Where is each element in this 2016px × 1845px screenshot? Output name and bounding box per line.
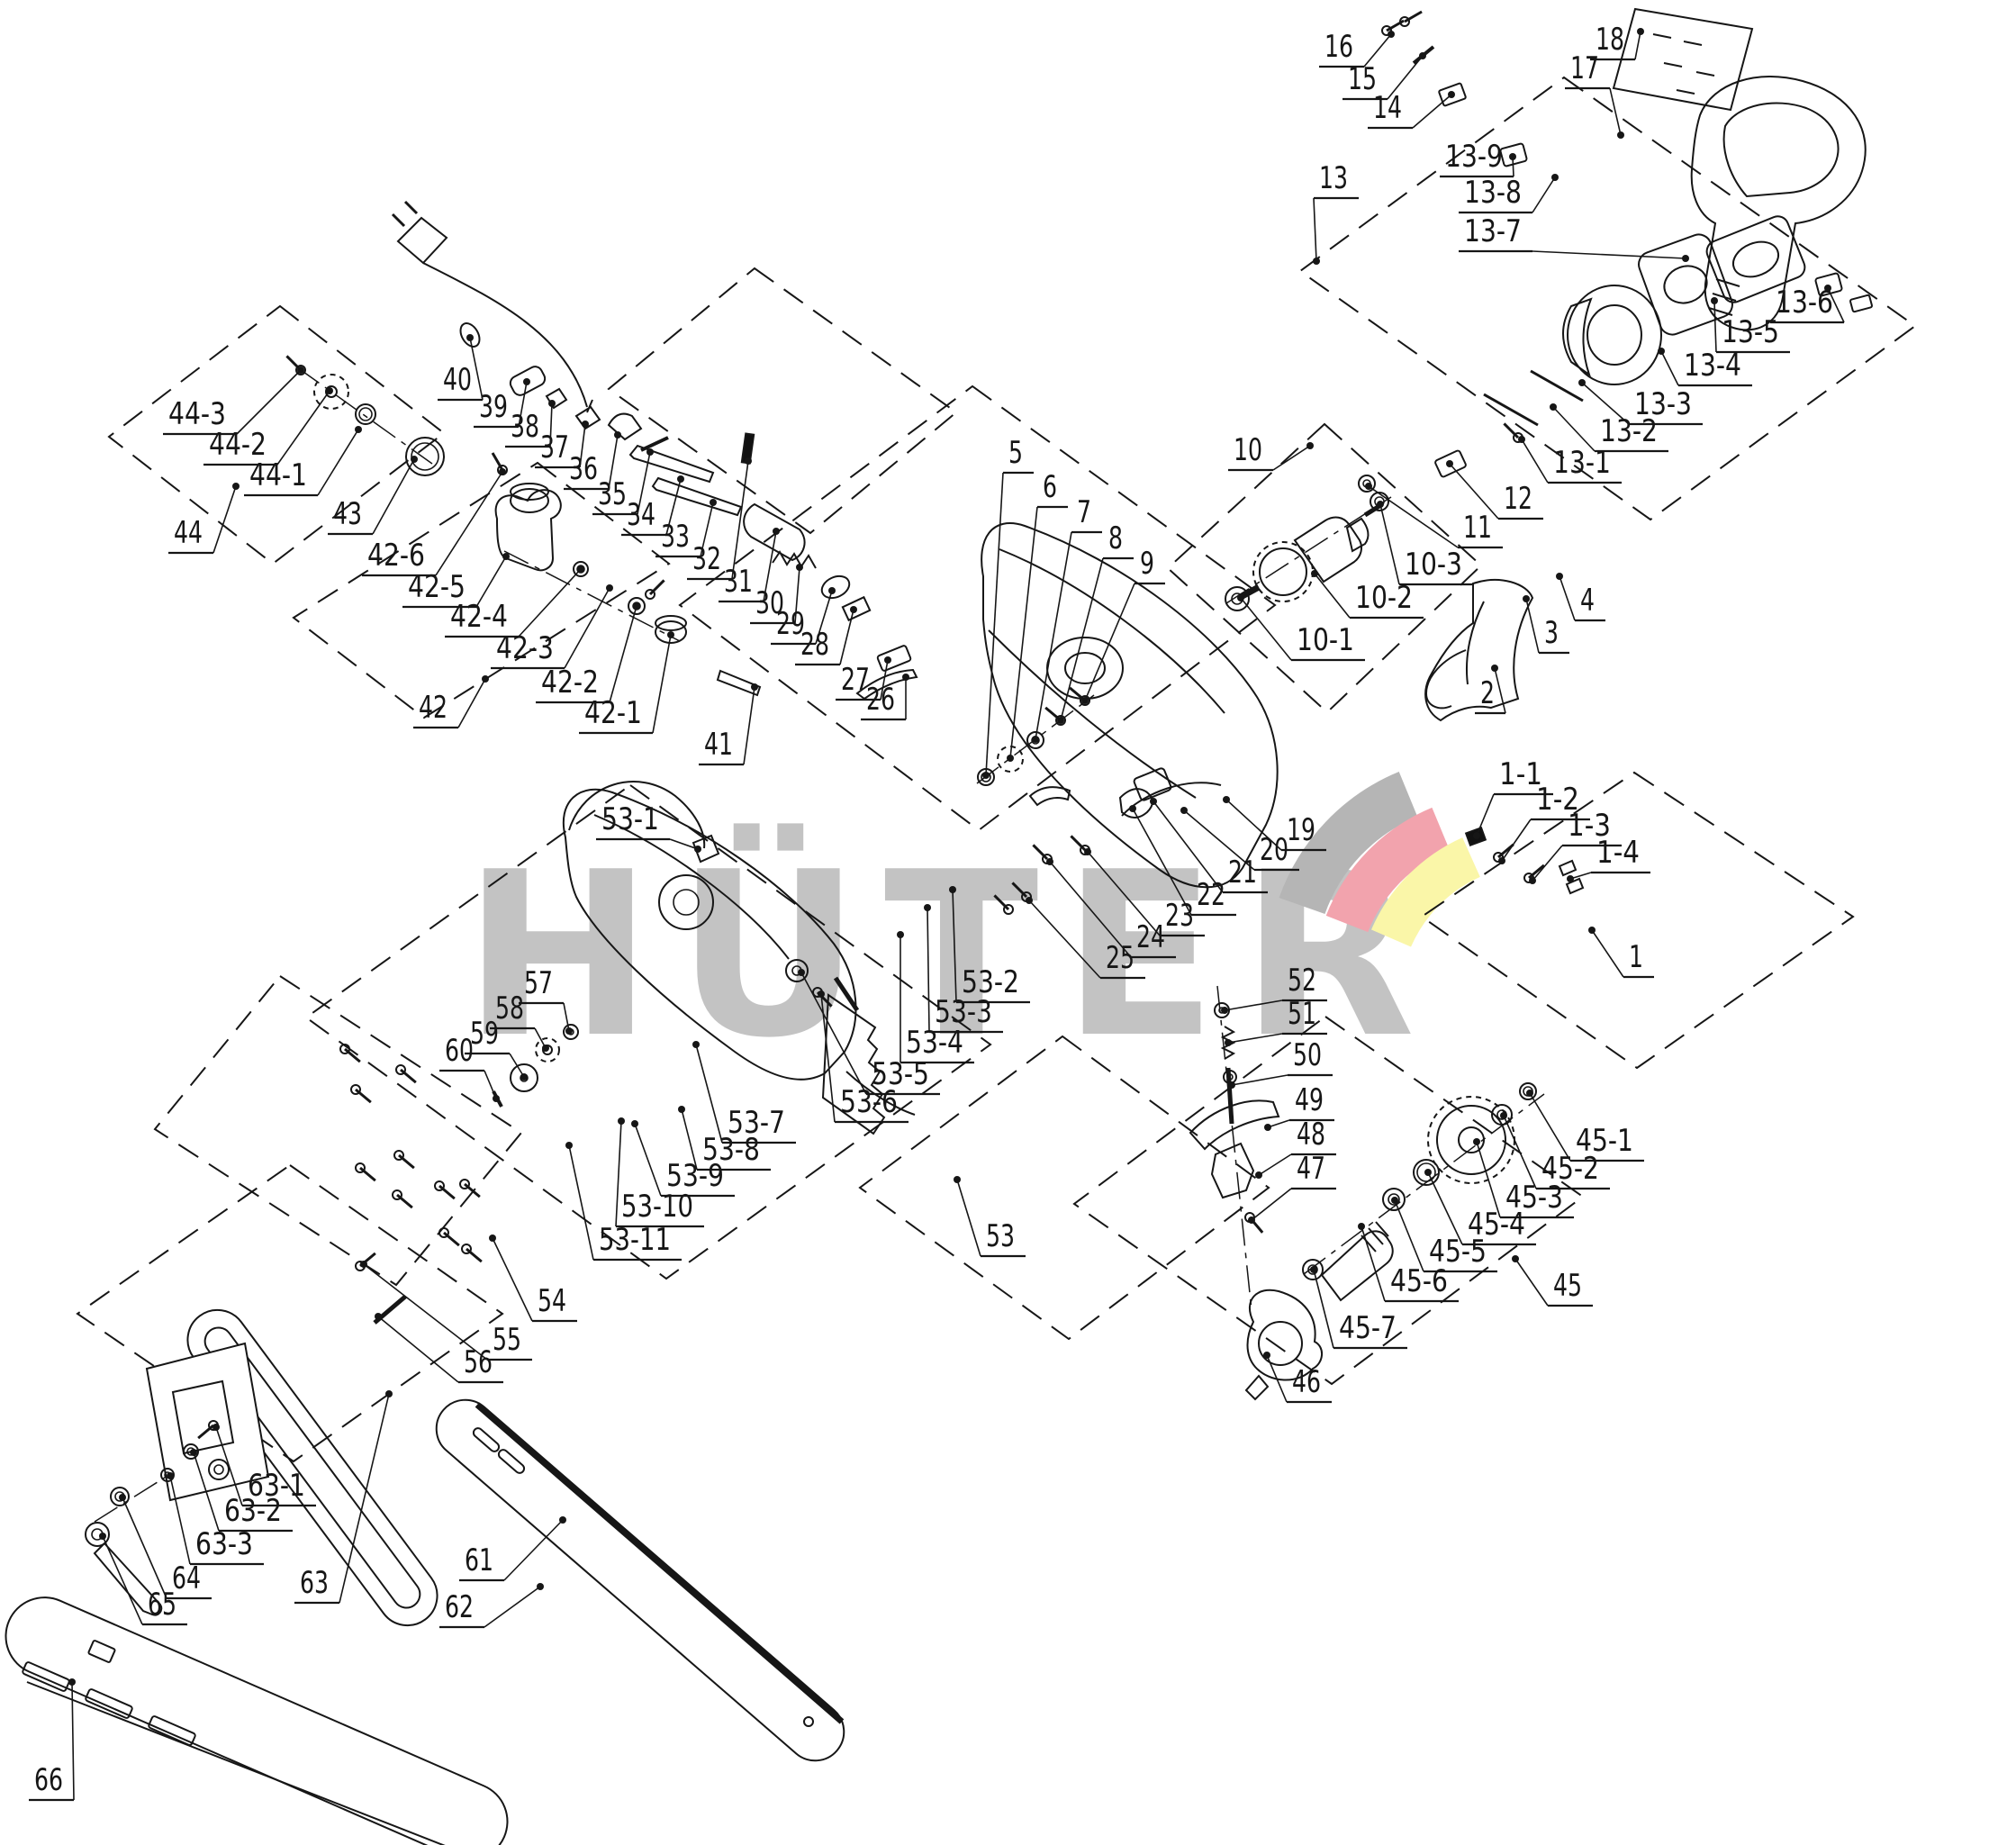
part-label-52: 52 — [1288, 963, 1316, 999]
ring-44-2-inner — [359, 408, 372, 421]
leader-dot-53-11 — [565, 1142, 573, 1149]
lever-36 — [609, 414, 641, 439]
leader-line-45 — [1515, 1259, 1548, 1306]
leader-dot-42-4 — [577, 565, 584, 573]
part-label-4: 4 — [1580, 583, 1595, 619]
part-label-60: 60 — [445, 1033, 474, 1069]
part-label-42-1: 42-1 — [584, 695, 642, 731]
part-label-53: 53 — [986, 1218, 1015, 1254]
leader-dot-15 — [1419, 52, 1426, 59]
part-label-8: 8 — [1108, 520, 1123, 556]
leader-dot-1-4 — [1567, 875, 1574, 882]
leader-line-46 — [1267, 1355, 1287, 1402]
part-label-10: 10 — [1234, 432, 1262, 468]
leader-dot-10 — [1306, 442, 1314, 449]
screw-long-a — [1484, 394, 1538, 425]
leader-dot-40 — [466, 334, 474, 341]
leader-dot-1-1 — [1473, 832, 1480, 839]
leader-dot-12 — [1446, 460, 1453, 467]
leader-dot-21 — [1150, 798, 1157, 805]
part-label-44: 44 — [174, 515, 203, 551]
part-label-45-6: 45-6 — [1390, 1263, 1448, 1299]
part-label-21: 21 — [1228, 855, 1257, 891]
leader-dot-53-8 — [678, 1106, 685, 1113]
leader-dot-53-5 — [798, 969, 805, 976]
screw-16b-shaft — [1405, 12, 1422, 22]
part-label-32: 32 — [692, 541, 721, 577]
part-label-59: 59 — [470, 1016, 499, 1052]
leader-line-10-3 — [1380, 504, 1399, 584]
part-label-45: 45 — [1553, 1268, 1582, 1304]
leader-dot-32 — [745, 457, 752, 465]
exploded-parts-diagram: HÜTER 1615141313-913-813-7171813-613-513… — [0, 0, 2016, 1845]
leader-dot-44 — [232, 483, 240, 490]
leader-dot-37 — [582, 421, 589, 428]
screw-54g-shaft — [439, 1186, 455, 1198]
leader-line-44-2 — [277, 391, 330, 465]
leader-dot-45-5 — [1391, 1197, 1398, 1204]
leader-line-42-2 — [610, 606, 637, 702]
scabbard-66 — [0, 1585, 520, 1845]
leader-dot-36 — [614, 431, 621, 439]
part-label-23: 23 — [1165, 898, 1194, 934]
part-label-54: 54 — [538, 1283, 566, 1319]
leader-line-64 — [122, 1497, 167, 1598]
leader-dot-59 — [520, 1073, 528, 1081]
leader-line-5 — [986, 473, 1003, 775]
leader-dot-39 — [523, 378, 530, 385]
block-13-6b — [1850, 294, 1873, 312]
handle-17-inner — [1724, 103, 1839, 196]
leader-dot-17 — [1617, 131, 1624, 139]
leader-dot-13-2 — [1550, 403, 1557, 411]
part-label-63-2: 63-2 — [224, 1493, 282, 1529]
screw-54d-shaft — [399, 1155, 414, 1168]
leader-line-44-1 — [318, 430, 358, 495]
leader-line-42-4 — [519, 569, 581, 637]
pump-46-ear — [1246, 1376, 1268, 1399]
guard-2-tube — [1426, 650, 1466, 708]
part-label-39: 39 — [479, 389, 508, 425]
screw-long-b — [1531, 371, 1583, 401]
part-label-65: 65 — [148, 1587, 176, 1623]
leader-line-1-1 — [1477, 794, 1494, 836]
leader-dot-18 — [1637, 28, 1644, 35]
part-label-47: 47 — [1297, 1151, 1325, 1187]
plug-prong-a — [393, 214, 404, 226]
fan-13-4b — [1587, 305, 1641, 365]
leader-line-45-5 — [1395, 1200, 1424, 1271]
leader-line-65 — [103, 1536, 142, 1624]
leader-dot-63-3 — [167, 1472, 174, 1479]
leader-line-11 — [1369, 486, 1458, 547]
part-label-53-1: 53-1 — [601, 801, 659, 837]
part-label-28: 28 — [800, 627, 829, 663]
leader-line-41 — [744, 687, 755, 764]
leader-line-13-5 — [1714, 301, 1716, 352]
leader-dot-9 — [1081, 697, 1089, 704]
part-label-24: 24 — [1136, 919, 1165, 955]
leader-dot-48 — [1255, 1171, 1262, 1179]
leader-dot-11 — [1365, 483, 1372, 490]
leader-line-13 — [1314, 198, 1316, 261]
housing-upper-boss — [1047, 638, 1123, 699]
leader-dot-50 — [1228, 1081, 1235, 1089]
leader-dot-53-7 — [692, 1041, 700, 1048]
leader-dot-23 — [1084, 848, 1091, 855]
leader-dot-55 — [360, 1261, 367, 1268]
leader-line-10 — [1273, 446, 1310, 470]
part-label-46: 46 — [1292, 1364, 1321, 1400]
part-label-57: 57 — [524, 965, 553, 1001]
rod-33 — [653, 478, 741, 515]
leader-dot-56 — [375, 1313, 382, 1320]
leader-dot-16 — [1388, 31, 1395, 38]
leader-dot-1 — [1588, 927, 1596, 934]
screw-13-1-shaft — [1504, 423, 1518, 438]
leader-line-62 — [484, 1587, 540, 1627]
leader-dot-28 — [850, 606, 857, 613]
leader-line-48 — [1259, 1154, 1291, 1175]
screw-54j-shaft — [466, 1249, 482, 1262]
leader-line-1-2 — [1502, 819, 1531, 861]
leader-line-6 — [1010, 507, 1037, 758]
leader-dot-52 — [1221, 1007, 1228, 1014]
leader-line-10-1 — [1241, 598, 1291, 660]
leader-dot-45 — [1512, 1255, 1519, 1262]
part-label-11: 11 — [1463, 510, 1492, 546]
leader-dot-63-1 — [212, 1424, 220, 1431]
leader-line-13-8 — [1532, 177, 1555, 213]
leader-line-53-9 — [635, 1124, 661, 1196]
part-label-53-11: 53-11 — [599, 1222, 671, 1258]
leader-dot-53-1 — [694, 846, 701, 853]
part-label-10-1: 10-1 — [1297, 622, 1354, 658]
armature-gear2 — [1260, 548, 1306, 595]
part-label-31: 31 — [724, 564, 753, 600]
leader-dot-65 — [99, 1533, 106, 1540]
leader-line-44-3 — [237, 370, 301, 434]
leader-dot-45-3 — [1473, 1138, 1480, 1145]
part-label-53-10: 53-10 — [621, 1189, 693, 1225]
leader-dot-13-7 — [1682, 255, 1689, 262]
leader-dot-22 — [1129, 805, 1136, 812]
leader-dot-53-4 — [897, 931, 904, 938]
diagram-page: HÜTER 1615141313-913-813-7171813-613-513… — [0, 0, 2016, 1845]
leader-dot-13-1 — [1518, 436, 1525, 443]
part-label-53-6: 53-6 — [840, 1084, 898, 1120]
leader-dot-53-10 — [618, 1117, 625, 1125]
leader-dot-13-3 — [1578, 379, 1586, 386]
leader-line-42-3 — [565, 588, 610, 668]
leader-dot-7 — [1032, 736, 1039, 743]
part-label-33: 33 — [661, 519, 690, 555]
part-label-42: 42 — [419, 690, 447, 726]
leader-line-4 — [1559, 576, 1575, 620]
leader-line-43 — [373, 459, 414, 534]
guard-2 — [1425, 580, 1532, 720]
leader-dot-14 — [1448, 91, 1455, 98]
part-label-13-4: 13-4 — [1684, 348, 1741, 384]
pump-46-bore — [1259, 1322, 1302, 1365]
leader-dot-1-2 — [1498, 857, 1505, 864]
part-label-3: 3 — [1544, 615, 1559, 651]
part-label-18: 18 — [1596, 22, 1624, 58]
leader-line-54 — [493, 1238, 532, 1321]
part-label-42-6: 42-6 — [367, 538, 425, 574]
part-label-61: 61 — [465, 1542, 493, 1578]
leader-dot-13-8 — [1551, 174, 1559, 181]
power-plug — [398, 218, 447, 263]
part-label-53-4: 53-4 — [906, 1025, 963, 1061]
part-label-20: 20 — [1260, 832, 1288, 868]
part-label-44-1: 44-1 — [249, 457, 307, 493]
part-label-40: 40 — [443, 362, 472, 398]
guard-2-line — [1467, 601, 1484, 684]
leader-dot-64 — [119, 1494, 126, 1501]
leader-dot-47 — [1248, 1216, 1255, 1224]
leader-dot-33 — [710, 499, 717, 506]
leader-dot-42-2 — [633, 602, 640, 610]
leader-dot-2 — [1491, 665, 1498, 672]
leader-dot-10-3 — [1377, 501, 1384, 508]
leader-line-53-11 — [569, 1145, 593, 1260]
screw-54b-shaft — [401, 1070, 416, 1082]
part-label-13-5: 13-5 — [1722, 314, 1779, 350]
leader-line-13-4 — [1661, 351, 1678, 385]
part-label-14: 14 — [1373, 90, 1402, 126]
tube-24 — [1030, 787, 1070, 805]
leader-dot-41 — [751, 683, 758, 691]
leader-dot-53-9 — [631, 1120, 638, 1127]
part-label-13-7: 13-7 — [1464, 213, 1522, 249]
leader-dot-63 — [385, 1390, 393, 1397]
part-label-43: 43 — [333, 496, 362, 532]
part-label-63-3: 63-3 — [195, 1526, 253, 1562]
plug-prong-b — [405, 202, 417, 213]
leader-line-63 — [339, 1394, 389, 1603]
leader-dot-42-1 — [667, 631, 674, 638]
part-label-26: 26 — [866, 682, 895, 718]
part-label-55: 55 — [493, 1322, 521, 1358]
leader-line-45-7 — [1314, 1270, 1333, 1348]
leader-dot-19 — [1223, 796, 1230, 803]
leader-dot-42-6 — [499, 468, 506, 475]
leader-dot-20 — [1180, 807, 1188, 814]
part-label-25: 25 — [1106, 940, 1135, 976]
part-label-34: 34 — [627, 497, 655, 533]
part-label-13-1: 13-1 — [1553, 445, 1611, 481]
leader-dot-13 — [1313, 258, 1320, 265]
leader-dot-62 — [537, 1583, 544, 1590]
part-label-56: 56 — [464, 1344, 493, 1380]
part-label-37: 37 — [540, 430, 569, 466]
screw-42-6-shaft — [493, 453, 502, 470]
leader-dot-46 — [1263, 1352, 1270, 1359]
leader-dot-43 — [411, 456, 418, 463]
latch-27 — [877, 645, 911, 671]
part-label-1-4: 1-4 — [1596, 835, 1640, 871]
part-label-9: 9 — [1140, 546, 1154, 582]
part-label-66: 66 — [34, 1762, 63, 1798]
part-label-35: 35 — [598, 476, 627, 512]
leader-line-18 — [1635, 32, 1641, 59]
leader-dot-24 — [1046, 858, 1053, 865]
leader-dot-10-2 — [1311, 570, 1318, 577]
leader-dot-53-2 — [949, 886, 956, 893]
part-label-5: 5 — [1008, 435, 1023, 471]
part-label-13-9: 13-9 — [1445, 139, 1503, 175]
part-label-48: 48 — [1297, 1117, 1325, 1153]
leader-dot-10-1 — [1237, 594, 1244, 601]
leader-dot-13-5 — [1711, 297, 1718, 304]
part-label-42-2: 42-2 — [541, 665, 599, 701]
part-label-22: 22 — [1197, 877, 1225, 913]
part-label-49: 49 — [1295, 1082, 1324, 1118]
leader-line-42-6 — [436, 472, 502, 575]
leader-dot-51 — [1225, 1039, 1232, 1046]
leader-line-42 — [458, 679, 485, 728]
leader-dot-4 — [1556, 573, 1563, 580]
leader-dot-49 — [1264, 1124, 1271, 1131]
part-label-62: 62 — [445, 1589, 474, 1625]
leader-line-45-6 — [1361, 1226, 1385, 1301]
part-label-10-3: 10-3 — [1405, 547, 1462, 583]
leader-dot-13-4 — [1658, 348, 1665, 355]
leader-dot-53-6 — [818, 990, 825, 998]
leader-dot-60 — [493, 1095, 500, 1102]
leader-line-1-3 — [1532, 846, 1562, 881]
part-label-12: 12 — [1504, 481, 1532, 517]
leader-line-42-1 — [653, 635, 671, 733]
leader-line-47 — [1252, 1189, 1291, 1220]
leader-dot-45-6 — [1358, 1223, 1365, 1230]
leader-dot-8 — [1057, 717, 1064, 724]
part-label-45-7: 45-7 — [1339, 1310, 1397, 1346]
leader-dot-53-3 — [924, 904, 931, 911]
bar-61-edge — [477, 1405, 842, 1722]
leader-line-14 — [1413, 95, 1451, 128]
part-label-10-2: 10-2 — [1355, 580, 1413, 616]
leader-line-61 — [504, 1520, 563, 1580]
leader-dot-42-5 — [502, 553, 510, 560]
shaft-45-6b — [1361, 1222, 1388, 1252]
leader-dot-45-2 — [1500, 1112, 1507, 1119]
screw-54c-shaft — [356, 1090, 371, 1102]
part-label-16: 16 — [1324, 29, 1353, 65]
leader-dot-42-3 — [606, 584, 613, 592]
leader-dot-25 — [1026, 897, 1033, 904]
washer-10-1 — [1225, 587, 1249, 610]
part-label-13-8: 13-8 — [1464, 175, 1522, 211]
leader-dot-44-1 — [355, 426, 362, 433]
part-label-6: 6 — [1043, 469, 1057, 505]
part-label-13-6: 13-6 — [1776, 285, 1833, 321]
part-label-19: 19 — [1287, 812, 1315, 848]
leader-dot-57 — [565, 1027, 573, 1035]
armature-gear — [1253, 542, 1313, 601]
leader-dot-1-3 — [1529, 877, 1536, 884]
part-label-38: 38 — [511, 409, 539, 445]
part-label-50: 50 — [1293, 1037, 1322, 1073]
leader-line-13-1 — [1522, 439, 1548, 483]
screw-54f-shaft — [397, 1195, 412, 1207]
leader-line-13-7 — [1532, 251, 1686, 258]
part-label-2: 2 — [1480, 675, 1495, 711]
switch-21 — [1133, 767, 1171, 801]
leader-line-32 — [732, 461, 748, 579]
plate-18-slots — [1653, 34, 1714, 94]
leader-line-45-2 — [1504, 1116, 1536, 1189]
part-label-7: 7 — [1077, 494, 1091, 530]
group-box-trigger — [609, 268, 956, 533]
leader-dot-61 — [559, 1516, 566, 1524]
leader-dot-45-4 — [1424, 1169, 1432, 1176]
part-label-13: 13 — [1319, 160, 1348, 196]
leader-dot-53 — [954, 1176, 961, 1183]
part-label-41: 41 — [704, 727, 733, 763]
housing-13-5w — [1659, 260, 1713, 309]
leader-line-44 — [213, 486, 236, 553]
leader-dot-42 — [482, 675, 489, 683]
leader-dot-6 — [1007, 755, 1014, 762]
leader-dot-29 — [828, 587, 836, 594]
leader-dot-58 — [542, 1045, 549, 1052]
screw-54h-shaft — [465, 1184, 480, 1197]
leader-dot-45-1 — [1526, 1090, 1533, 1097]
leader-dot-34 — [677, 475, 684, 483]
group-box-1 — [1422, 773, 1853, 1068]
group-box-44 — [109, 306, 444, 564]
cup-29 — [818, 572, 853, 601]
cap-42-1b — [655, 616, 686, 630]
leader-dot-54 — [489, 1235, 496, 1242]
screw-54i-shaft — [444, 1233, 459, 1245]
part-label-63: 63 — [300, 1565, 329, 1601]
leader-dot-26 — [902, 674, 909, 681]
part-label-1: 1 — [1629, 939, 1643, 975]
gear-45-3b — [1437, 1106, 1505, 1174]
leader-line-7 — [1035, 532, 1071, 739]
leader-dot-27 — [884, 656, 891, 664]
leader-dot-5 — [982, 772, 990, 779]
leader-dot-13-9 — [1509, 153, 1516, 160]
stator-window — [1728, 236, 1784, 284]
leader-dot-3 — [1523, 595, 1530, 602]
leader-line-53 — [957, 1180, 981, 1256]
leader-dot-31 — [773, 528, 780, 535]
part-label-36: 36 — [569, 451, 598, 487]
part-label-58: 58 — [495, 990, 524, 1027]
screw-54e-shaft — [360, 1168, 375, 1180]
leader-line-10-2 — [1315, 574, 1350, 618]
screw-42-2b-shaft — [650, 580, 664, 594]
leader-line-1 — [1592, 930, 1623, 977]
leader-dot-63-2 — [190, 1449, 197, 1456]
leader-dot-30 — [796, 564, 803, 571]
leader-dot-44-3 — [297, 366, 304, 374]
leader-dot-66 — [68, 1678, 76, 1686]
part-label-51: 51 — [1288, 996, 1316, 1032]
handle-17-vents — [1709, 279, 1740, 315]
leader-dot-38 — [548, 400, 556, 407]
leader-dot-44-2 — [326, 387, 333, 394]
leader-line-3 — [1526, 599, 1539, 653]
clip-1-4a — [1559, 861, 1576, 875]
leader-dot-35 — [646, 448, 654, 456]
leader-dot-45-7 — [1310, 1266, 1317, 1273]
part-label-13-2: 13-2 — [1600, 413, 1658, 449]
